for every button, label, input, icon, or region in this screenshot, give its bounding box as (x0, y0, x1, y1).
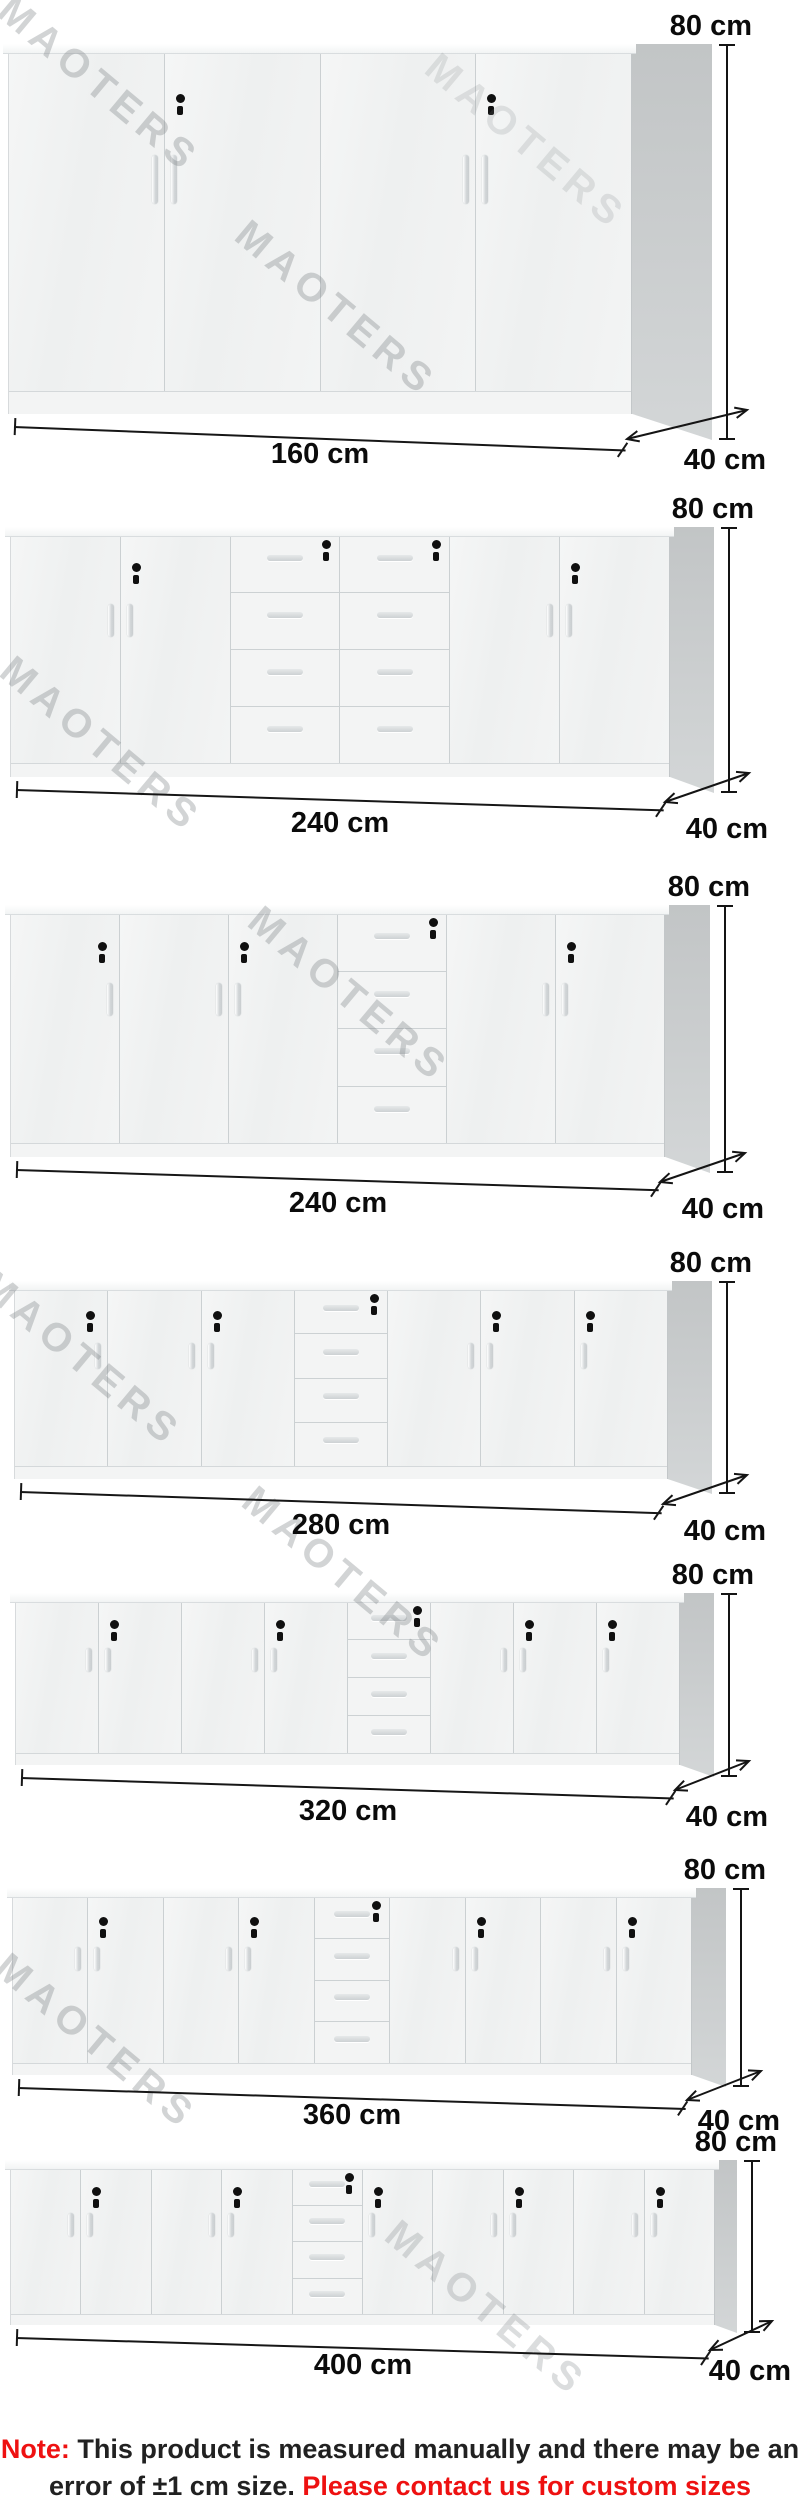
drawer-handle (334, 1911, 370, 1917)
drawer (348, 1640, 430, 1678)
drawer (340, 593, 449, 650)
door-column (202, 1290, 295, 1467)
cabinet-columns (11, 2169, 714, 2315)
lock-keyhole (111, 1632, 117, 1641)
drawer (295, 1334, 387, 1378)
height-dimension-label: 80 cm (580, 1854, 766, 1887)
drawer-column (231, 536, 341, 764)
lock-keyhole (526, 1632, 532, 1641)
lock-circle (372, 1901, 381, 1910)
width-dimension-label: 240 cm (230, 807, 450, 840)
drawer-handle (371, 1653, 407, 1659)
door-handle (189, 1343, 195, 1369)
drawer-handle (323, 1305, 359, 1311)
lock-keyhole (568, 954, 574, 963)
door-lock (98, 942, 108, 963)
door-column (88, 1897, 163, 2064)
door-column (16, 1602, 99, 1754)
door-handle (651, 2213, 657, 2237)
cabinet-front (12, 1888, 692, 2075)
door-handle (226, 1947, 232, 1971)
depth-dimension-label: 40 cm (606, 444, 766, 477)
drawer-handle (374, 933, 410, 939)
height-dimension-line (726, 1281, 728, 1494)
door-handle (487, 1343, 493, 1369)
height-dimension-label: 80 cm (591, 2126, 777, 2159)
door-column (466, 1897, 541, 2064)
drawer (315, 1981, 389, 2023)
cabinet-side-panel (670, 527, 714, 793)
door-column (363, 2169, 433, 2315)
width-dimension-label: 320 cm (238, 1795, 458, 1828)
door-handle (87, 2213, 93, 2237)
door-lock (176, 94, 186, 115)
lock-circle (110, 1620, 119, 1629)
drawer (295, 1379, 387, 1423)
lock-keyhole (87, 1323, 93, 1332)
door-column (476, 53, 631, 392)
door-column (645, 2169, 714, 2315)
height-dimension-label: 80 cm (568, 493, 754, 526)
door-handle (86, 1648, 92, 1672)
door-handle (252, 1648, 258, 1672)
door-handle (482, 155, 488, 204)
drawer-handle (374, 1106, 410, 1112)
door-lock (110, 1620, 120, 1641)
drawer-handle (377, 612, 413, 618)
drawer-handle (323, 1437, 359, 1443)
cabinet-side-panel (632, 44, 712, 440)
drawer (348, 1678, 430, 1716)
depth-dimension-arrow (672, 1755, 752, 1797)
drawer (338, 1087, 446, 1145)
cabinet-plinth (11, 1143, 664, 1157)
door-column (11, 914, 120, 1144)
height-dimension-label: 80 cm (566, 1247, 752, 1280)
lock-keyhole (371, 1306, 377, 1315)
door-lock (99, 1917, 109, 1938)
drawer-column (315, 1897, 390, 2064)
lock-circle (477, 1917, 486, 1926)
cabinet-front (8, 44, 632, 414)
drawer-lock (413, 1606, 423, 1627)
cabinet-top (5, 2160, 719, 2170)
cabinet-top (9, 1281, 672, 1291)
lock-keyhole (214, 1323, 220, 1332)
door-column (121, 536, 231, 764)
drawer-handle (267, 612, 303, 618)
lock-keyhole (100, 1929, 106, 1938)
door-column (11, 536, 121, 764)
drawer-handle (323, 1393, 359, 1399)
lock-circle (374, 2187, 383, 2196)
door-column (222, 2169, 292, 2315)
door-handle (105, 1648, 111, 1672)
door-lock (567, 942, 577, 963)
depth-dimension-arrow (662, 767, 752, 809)
door-handle (603, 1648, 609, 1672)
lock-keyhole (414, 1618, 420, 1627)
door-lock (92, 2187, 102, 2208)
drawer-handle (267, 726, 303, 732)
lock-circle (213, 1311, 222, 1320)
door-column (13, 1897, 88, 2064)
lock-circle (429, 918, 438, 927)
door-handle (547, 604, 553, 637)
door-lock (477, 1917, 487, 1938)
door-column (541, 1897, 616, 2064)
cabinet-columns (13, 1897, 691, 2064)
drawer-handle (371, 1615, 407, 1621)
drawer-handle (371, 1729, 407, 1735)
door-lock (132, 563, 142, 584)
lock-circle (567, 942, 576, 951)
door-column (447, 914, 556, 1144)
door-handle (632, 2213, 638, 2237)
drawer-handle (323, 1349, 359, 1355)
door-handle (510, 2213, 516, 2237)
door-handle (152, 155, 158, 204)
height-dimension-label: 80 cm (564, 871, 750, 904)
drawer-lock (345, 2173, 355, 2194)
door-handle (208, 1343, 214, 1369)
width-dimension-label: 160 cm (210, 438, 430, 471)
door-handle (369, 2213, 375, 2237)
lock-keyhole (433, 552, 439, 561)
cabinet-front (10, 527, 670, 777)
door-lock (515, 2187, 525, 2208)
depth-dimension-label: 40 cm (604, 1193, 764, 1226)
cabinet-side-panel (680, 1593, 714, 1777)
lock-keyhole (277, 1632, 283, 1641)
door-handle (491, 2213, 497, 2237)
drawer-handle (377, 726, 413, 732)
drawer-lock (322, 540, 332, 561)
drawer (340, 707, 449, 764)
door-column (390, 1897, 465, 2064)
door-column (164, 1897, 239, 2064)
lock-keyhole (572, 575, 578, 584)
product-dimension-image: 80 cm160 cm40 cm80 cm240 cm40 cm80 cm240… (0, 0, 800, 2517)
lock-keyhole (99, 954, 105, 963)
note-line-2: error of ±1 cm size. Please contact us f… (0, 2468, 800, 2505)
drawer-handle (371, 1691, 407, 1697)
door-handle (566, 604, 572, 637)
drawer (315, 1939, 389, 1981)
note: Note: This product is measured manually … (0, 2431, 800, 2505)
note-text-black: This product is measured manually and th… (70, 2434, 799, 2464)
drawer-column (348, 1602, 431, 1754)
door-lock (374, 2187, 384, 2208)
door-handle (453, 1947, 459, 1971)
lock-keyhole (430, 930, 436, 939)
drawer (231, 593, 340, 650)
lock-circle (586, 1311, 595, 1320)
cabinet-front (10, 2160, 715, 2325)
lock-keyhole (241, 954, 247, 963)
door-handle (463, 155, 469, 204)
door-handle (209, 2213, 215, 2237)
drawer-handle (309, 2254, 345, 2260)
cabinet-plinth (15, 1466, 667, 1479)
door-handle (228, 2213, 234, 2237)
door-handle (68, 2213, 74, 2237)
drawer-column (295, 1290, 388, 1467)
door-column (597, 1602, 679, 1754)
door-column (152, 2169, 222, 2315)
cabinet-plinth (11, 763, 669, 777)
door-handle (543, 983, 549, 1016)
drawer-handle (309, 2291, 345, 2297)
door-column (99, 1602, 182, 1754)
door-handle (108, 604, 114, 637)
door-column (504, 2169, 574, 2315)
lock-circle (132, 563, 141, 572)
lock-circle (99, 1917, 108, 1926)
door-handle (562, 983, 568, 1016)
width-dimension-label: 360 cm (242, 2099, 462, 2132)
door-column (556, 914, 664, 1144)
door-handle (107, 983, 113, 1016)
height-dimension-line (728, 1593, 730, 1777)
drawer (293, 2242, 362, 2279)
door-column (574, 2169, 644, 2315)
lock-circle (176, 94, 185, 103)
lock-keyhole (373, 1913, 379, 1922)
lock-keyhole (478, 1929, 484, 1938)
depth-dimension-arrow (684, 2065, 764, 2107)
door-handle (171, 155, 177, 204)
drawer (293, 2206, 362, 2243)
door-lock (571, 563, 581, 584)
door-column (265, 1602, 348, 1754)
door-handle (216, 983, 222, 1016)
cabinet-front (15, 1593, 680, 1765)
drawer-handle (334, 1953, 370, 1959)
cabinet-top (10, 1593, 684, 1603)
door-column (321, 53, 477, 392)
door-column (239, 1897, 314, 2064)
drawer (338, 1029, 446, 1087)
width-dimension-label: 240 cm (228, 1187, 448, 1220)
depth-dimension-arrow (660, 1469, 750, 1511)
door-column (182, 1602, 265, 1754)
height-dimension-line (740, 1888, 742, 2087)
lock-circle (322, 540, 331, 549)
lock-circle (628, 1917, 637, 1926)
lock-circle (571, 563, 580, 572)
note-line-1: Note: This product is measured manually … (0, 2431, 800, 2468)
door-column (15, 1290, 108, 1467)
depth-dimension-label: 40 cm (608, 1801, 768, 1834)
drawer-handle (377, 555, 413, 561)
cabinet-plinth (16, 1753, 679, 1765)
drawer (338, 972, 446, 1030)
height-dimension-line (728, 527, 730, 793)
drawer-handle (334, 2036, 370, 2042)
lock-circle (413, 1606, 422, 1615)
cabinet-side-panel (668, 1281, 712, 1494)
drawer (348, 1716, 430, 1754)
lock-circle (240, 942, 249, 951)
lock-circle (487, 94, 496, 103)
lock-circle (370, 1294, 379, 1303)
lock-circle (92, 2187, 101, 2196)
drawer-handle (374, 991, 410, 997)
lock-keyhole (488, 106, 494, 115)
depth-dimension-arrow (707, 2315, 775, 2357)
cabinet-plinth (11, 2314, 714, 2325)
lock-keyhole (177, 106, 183, 115)
drawer-handle (374, 1048, 410, 1054)
door-lock (86, 1311, 96, 1332)
door-column (433, 2169, 503, 2315)
drawer-column (338, 914, 447, 1144)
drawer-handle (267, 669, 303, 675)
cabinet-front (10, 905, 665, 1157)
depth-dimension-arrow (657, 1147, 748, 1189)
door-lock (240, 942, 250, 963)
door-column (514, 1602, 597, 1754)
cabinet-side-panel (715, 2160, 737, 2333)
drawer (231, 707, 340, 764)
door-lock (608, 1620, 618, 1641)
lock-circle (250, 1917, 259, 1926)
lock-circle (432, 540, 441, 549)
door-lock (213, 1311, 223, 1332)
door-lock (276, 1620, 286, 1641)
drawer (231, 650, 340, 707)
lock-circle (86, 1311, 95, 1320)
lock-keyhole (234, 2199, 240, 2208)
door-handle (75, 1947, 81, 1971)
note-text-red: Please contact us for custom sizes (302, 2471, 751, 2501)
door-handle (581, 1343, 587, 1369)
door-lock (487, 94, 497, 115)
cabinet-side-panel (692, 1888, 726, 2087)
width-dimension-label: 400 cm (253, 2349, 473, 2382)
drawer (295, 1423, 387, 1467)
drawer-column (340, 536, 450, 764)
cabinet-top (3, 44, 636, 54)
door-lock (525, 1620, 535, 1641)
lock-circle (656, 2187, 665, 2196)
cabinet-columns (11, 914, 664, 1144)
drawer-lock (370, 1294, 380, 1315)
lock-circle (525, 1620, 534, 1629)
drawer-handle (309, 2181, 345, 2187)
drawer-column (293, 2169, 363, 2315)
door-column (108, 1290, 201, 1467)
door-handle (604, 1947, 610, 1971)
door-lock (586, 1311, 596, 1332)
note-text-black-2: error of ±1 cm size. (49, 2471, 302, 2501)
door-column (450, 536, 560, 764)
lock-circle (492, 1311, 501, 1320)
door-column (11, 2169, 81, 2315)
drawer (293, 2279, 362, 2316)
lock-keyhole (493, 1323, 499, 1332)
lock-keyhole (251, 1929, 257, 1938)
lock-circle (276, 1620, 285, 1629)
door-lock (628, 1917, 638, 1938)
door-handle (245, 1947, 251, 1971)
door-column (617, 1897, 691, 2064)
cabinet-columns (9, 53, 631, 392)
drawer (315, 2022, 389, 2064)
door-lock (656, 2187, 666, 2208)
lock-circle (233, 2187, 242, 2196)
lock-keyhole (657, 2199, 663, 2208)
lock-keyhole (516, 2199, 522, 2208)
lock-circle (345, 2173, 354, 2182)
door-handle (501, 1648, 507, 1672)
cabinet-plinth (13, 2063, 691, 2075)
lock-keyhole (346, 2185, 352, 2194)
depth-dimension-arrow (624, 404, 750, 446)
lock-circle (98, 942, 107, 951)
depth-dimension-label: 40 cm (606, 1515, 766, 1548)
lock-circle (515, 2187, 524, 2196)
drawer-lock (372, 1901, 382, 1922)
door-column (81, 2169, 151, 2315)
cabinet-plinth (9, 391, 631, 414)
cabinet-columns (11, 536, 669, 764)
door-column (229, 914, 338, 1144)
cabinet-top (5, 527, 674, 537)
height-dimension-label: 80 cm (566, 10, 752, 43)
width-dimension-label: 280 cm (231, 1509, 451, 1542)
door-column (388, 1290, 481, 1467)
height-dimension-label: 80 cm (568, 1559, 754, 1592)
lock-keyhole (93, 2199, 99, 2208)
door-column (431, 1602, 514, 1754)
door-lock (233, 2187, 243, 2208)
door-lock (250, 1917, 260, 1938)
drawer-handle (267, 555, 303, 561)
door-column (120, 914, 229, 1144)
door-handle (468, 1343, 474, 1369)
door-column (9, 53, 165, 392)
lock-keyhole (609, 1632, 615, 1641)
cabinet-top (7, 1888, 696, 1898)
drawer-handle (309, 2218, 345, 2224)
drawer-lock (432, 540, 442, 561)
cabinet-side-panel (665, 905, 710, 1173)
lock-keyhole (587, 1323, 593, 1332)
depth-dimension-label: 40 cm (608, 813, 768, 846)
drawer-handle (334, 1994, 370, 2000)
lock-keyhole (323, 552, 329, 561)
lock-keyhole (629, 1929, 635, 1938)
door-handle (520, 1648, 526, 1672)
door-handle (94, 1947, 100, 1971)
note-label: Note: (1, 2434, 70, 2464)
door-handle (95, 1343, 101, 1369)
lock-keyhole (133, 575, 139, 584)
height-dimension-line (726, 44, 728, 440)
cabinet-columns (15, 1290, 667, 1467)
drawer-handle (377, 669, 413, 675)
door-lock (492, 1311, 502, 1332)
door-handle (271, 1648, 277, 1672)
door-column (165, 53, 321, 392)
drawer-lock (429, 918, 439, 939)
height-dimension-line (751, 2160, 753, 2333)
door-handle (127, 604, 133, 637)
door-handle (472, 1947, 478, 1971)
lock-keyhole (375, 2199, 381, 2208)
